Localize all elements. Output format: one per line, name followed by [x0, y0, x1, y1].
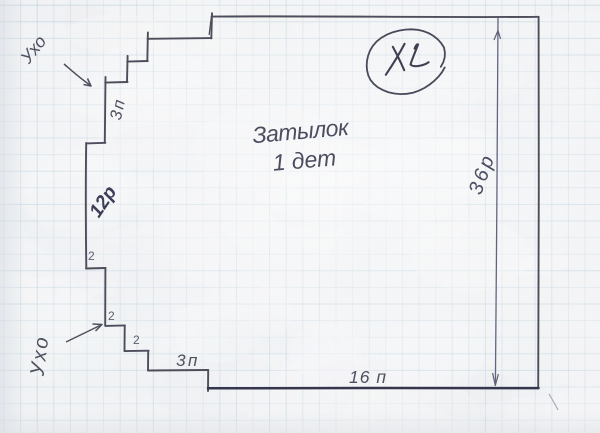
svg-text:1 дет: 1 дет	[271, 144, 337, 175]
svg-text:3п: 3п	[176, 351, 200, 370]
svg-text:2: 2	[133, 333, 140, 347]
svg-text:2: 2	[108, 309, 115, 323]
svg-text:16 п: 16 п	[349, 367, 387, 387]
svg-text:2: 2	[88, 249, 95, 263]
